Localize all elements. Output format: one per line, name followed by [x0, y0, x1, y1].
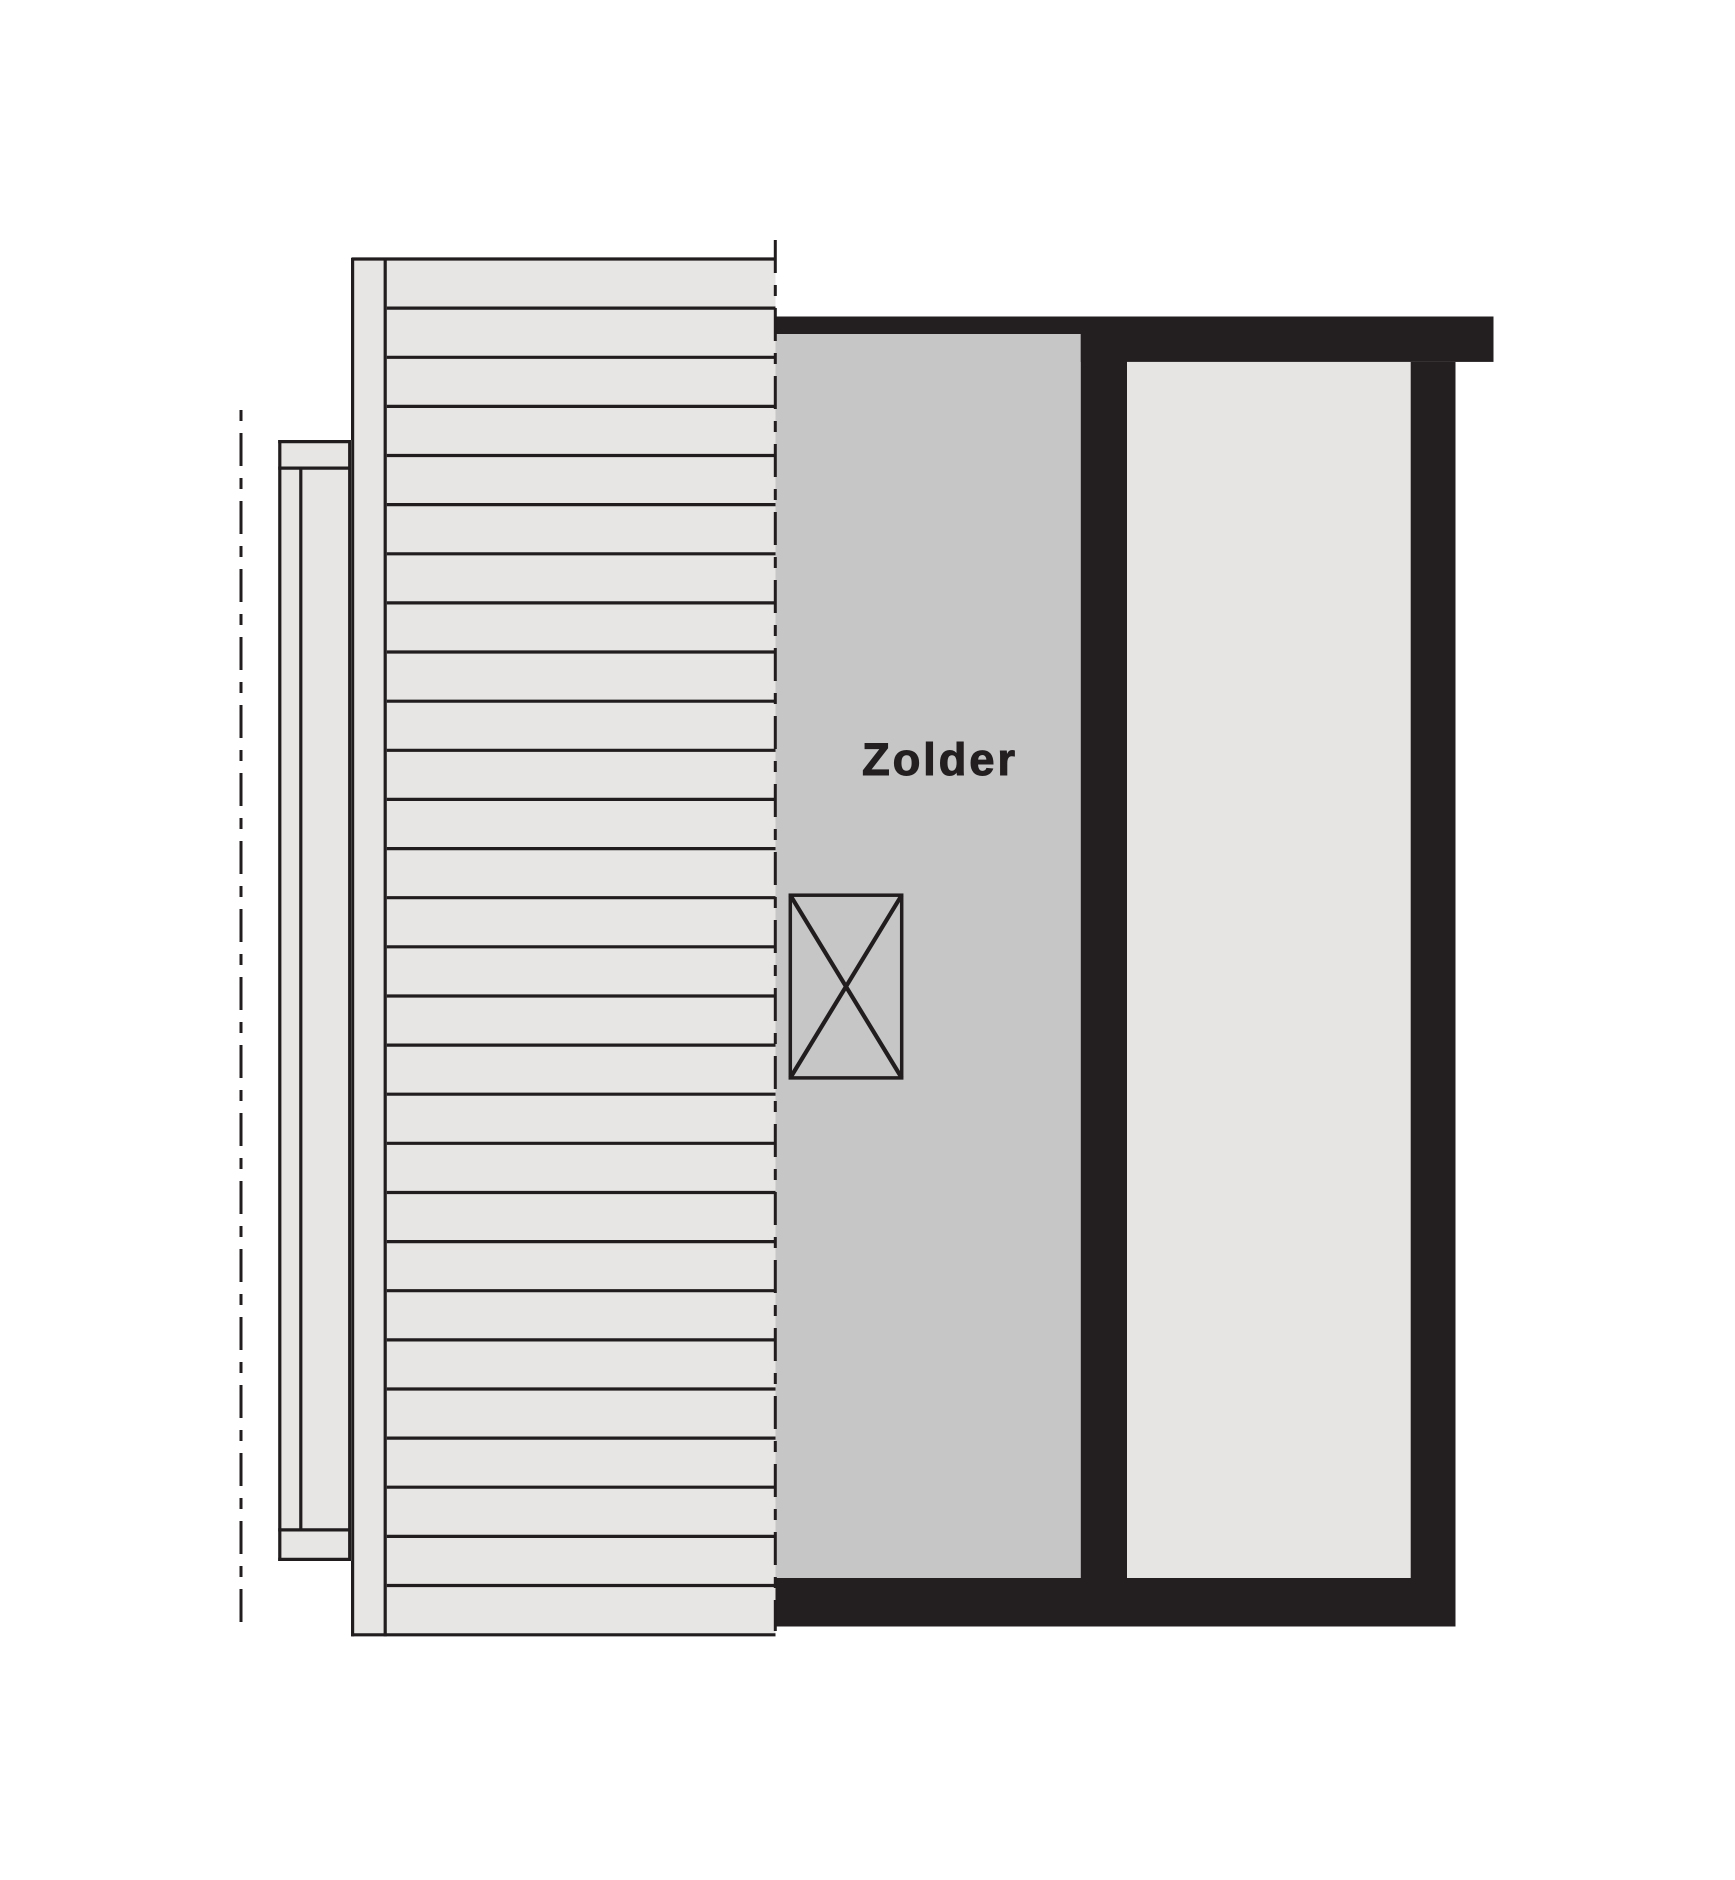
svg-text:Zolder: Zolder	[862, 734, 1018, 785]
